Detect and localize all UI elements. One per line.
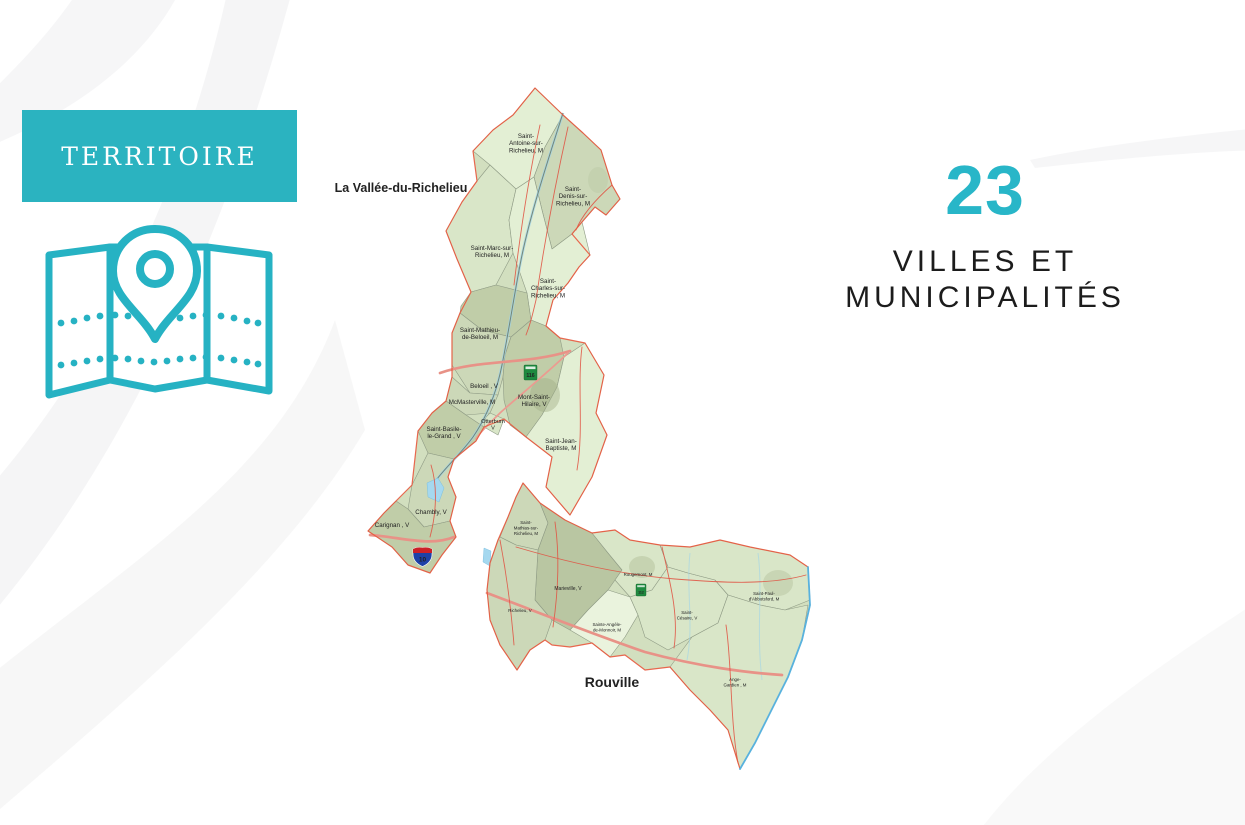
territory-banner: TERRITOIRE <box>22 110 297 202</box>
stat-block: 23 VILLES ET MUNICIPALITÉS <box>835 152 1135 316</box>
map-label-17: Sainte-Angèle-de-Monnoir, M <box>592 622 622 632</box>
map-label-16: Rougemont, M <box>624 572 653 577</box>
stat-label: VILLES ET MUNICIPALITÉS <box>835 244 1135 316</box>
svg-text:10: 10 <box>419 557 427 564</box>
map-label-9: Saint-Basile-le-Grand , V <box>426 426 461 440</box>
map-label-6: McMasterville, M <box>449 399 495 406</box>
region-saint-mathias-sur-richelieu <box>500 483 548 550</box>
map-label-4: Saint-Mathieu-de-Beloeil, M <box>460 327 500 341</box>
route-116-shield: 116 <box>524 365 537 380</box>
map-label-10: Saint-Jean-Baptiste, M <box>545 438 577 452</box>
territory-banner-label: TERRITOIRE <box>61 142 258 171</box>
mrc-label-1: Rouville <box>585 674 640 690</box>
svg-text:116: 116 <box>526 373 534 379</box>
map-label-5: Beloeil , V <box>470 383 499 390</box>
map-label-7: Mont-Saint-Hilaire, V <box>518 394 550 408</box>
stat-label-line-2: MUNICIPALITÉS <box>835 280 1135 316</box>
map-label-12: Carignan , V <box>375 522 410 529</box>
svg-text:112: 112 <box>638 590 644 594</box>
stat-label-line-1: VILLES ET <box>835 244 1135 280</box>
stat-value: 23 <box>835 152 1135 228</box>
swirl-ribbon-bottom-right <box>980 600 1245 825</box>
slide: TERRITOIRE <box>0 0 1245 825</box>
map-label-11: Chambly, V <box>415 509 447 516</box>
route-112-shield: 112 <box>636 584 646 596</box>
map-label-15: Richelieu, V <box>508 608 531 613</box>
map-pin-icon <box>45 225 273 413</box>
mrc-label-0: La Vallée-du-Richelieu <box>335 181 468 195</box>
map-label-2: Saint-Marc-sur-Richelieu, M <box>471 245 514 259</box>
mrc-municipal-map: 116 112 10 Saint-Antoine-sur-Richelieu, … <box>325 85 835 775</box>
map-label-14: Marieville, V <box>554 586 582 592</box>
